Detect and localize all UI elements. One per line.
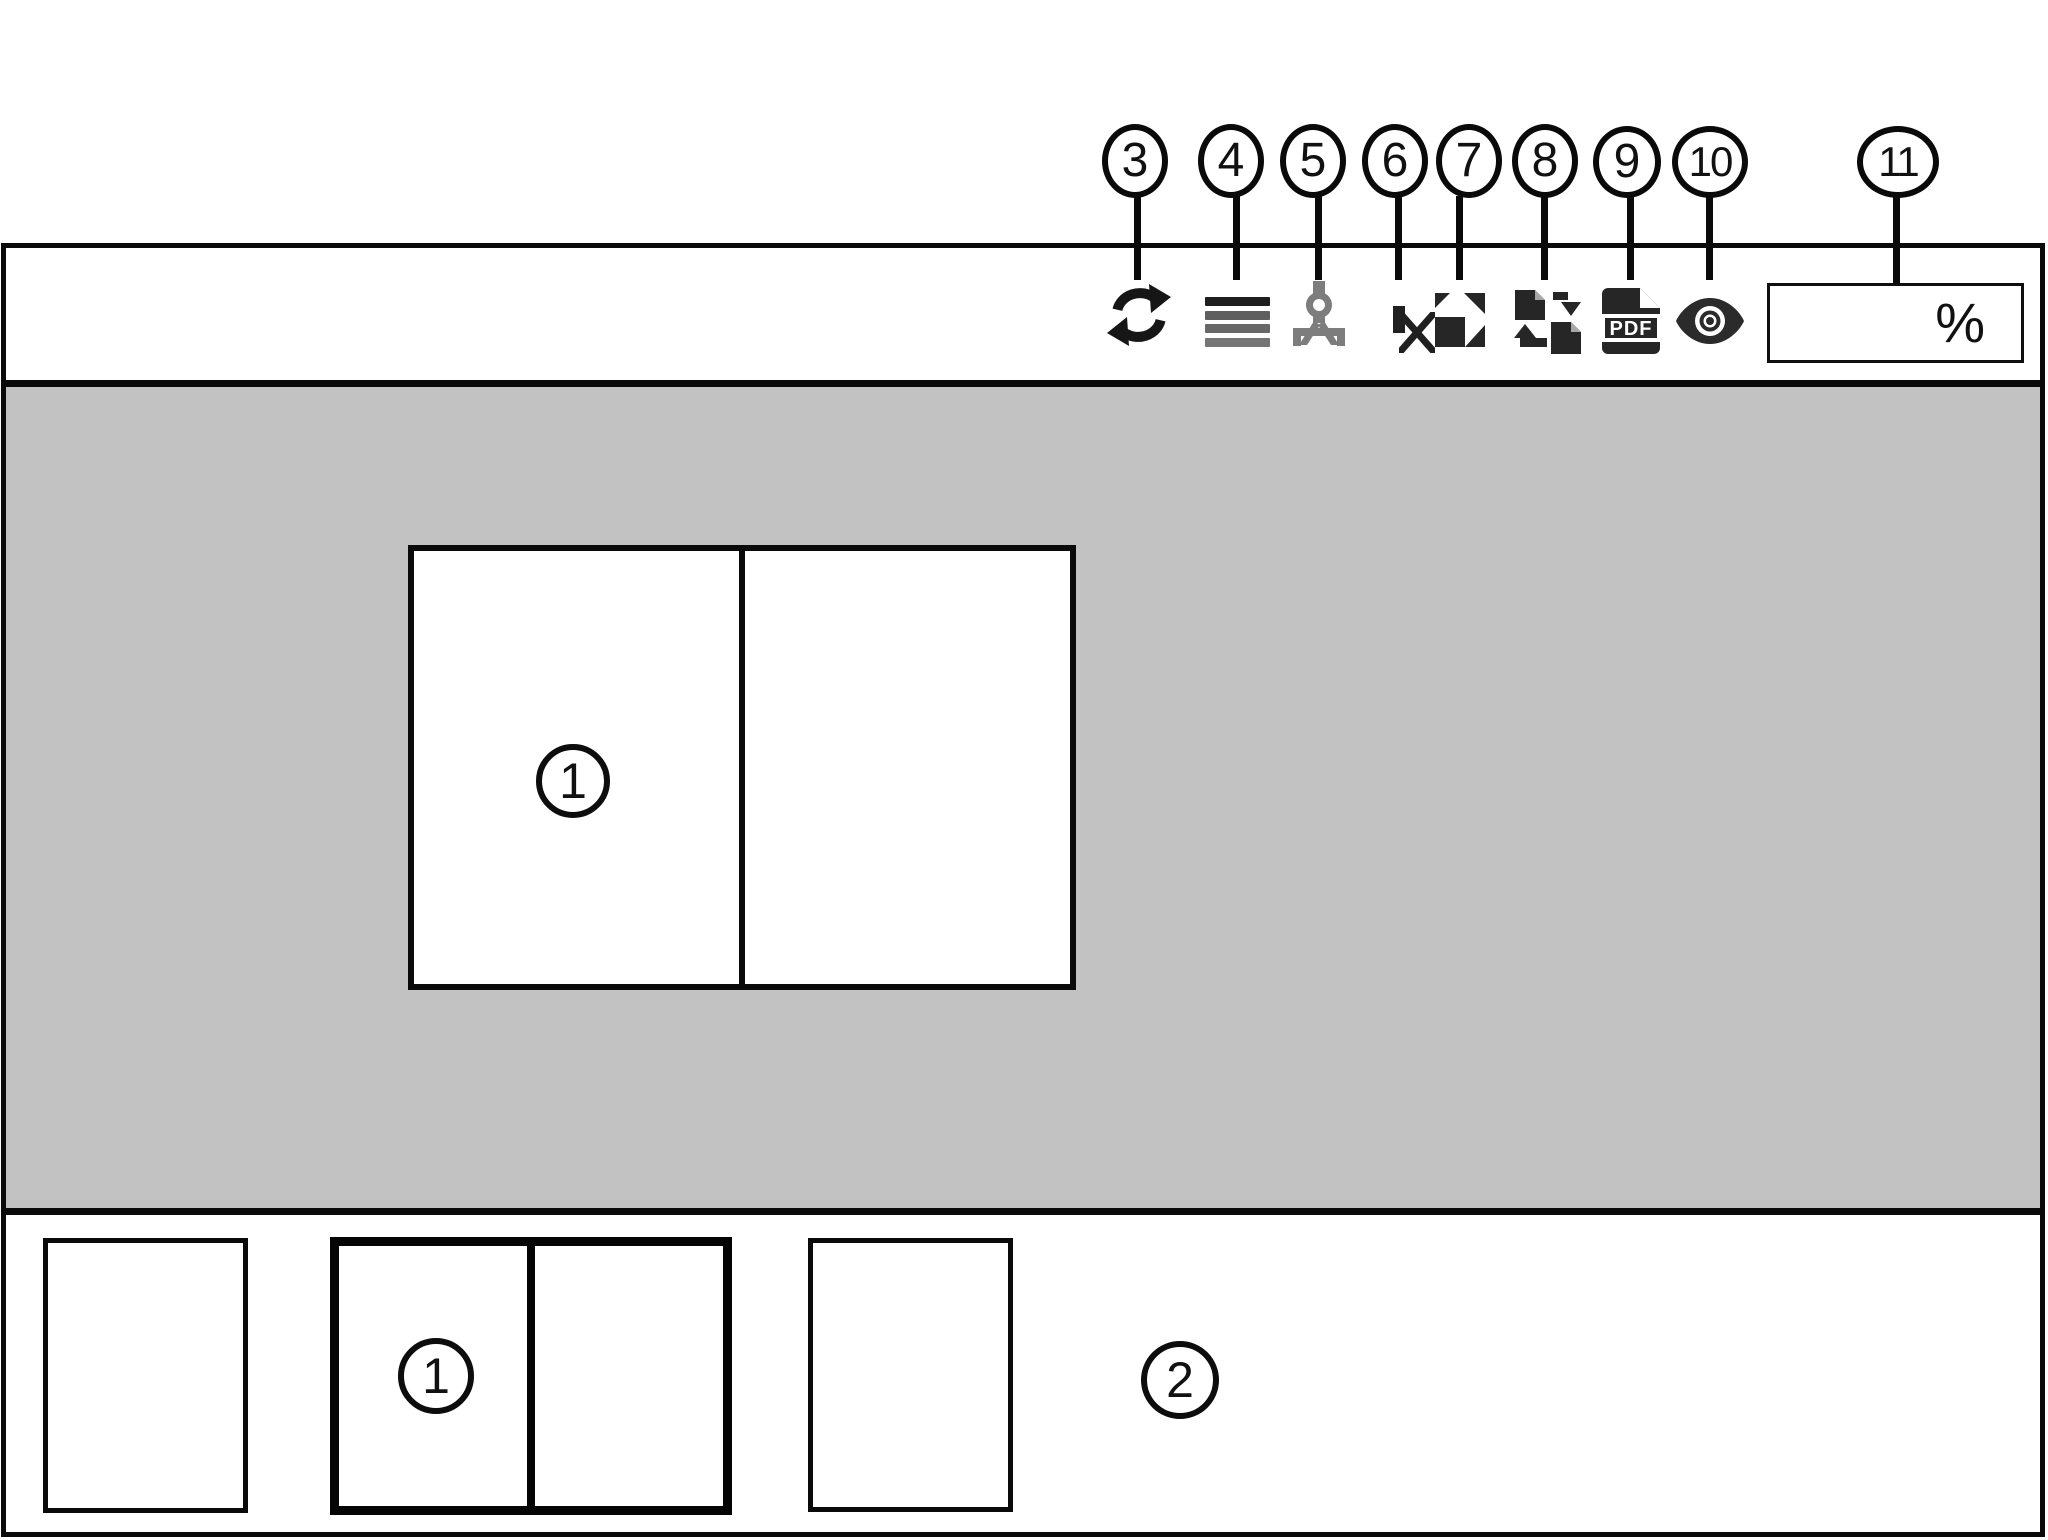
callout-2-number: 2 bbox=[1166, 1355, 1194, 1405]
callout-10-number: 10 bbox=[1689, 141, 1732, 183]
preview-spread: 1 bbox=[408, 545, 1076, 990]
pdf-icon: PDF bbox=[1600, 288, 1662, 354]
measure-tool-button[interactable] bbox=[1293, 281, 1345, 351]
callout-4: 4 bbox=[1198, 124, 1264, 198]
thumbnail-strip: 1 2 bbox=[6, 1208, 2040, 1532]
spread-gutter bbox=[739, 551, 745, 984]
delete-page-button[interactable] bbox=[1375, 293, 1423, 346]
thumbnail-gutter bbox=[527, 1246, 535, 1506]
toolbar: PDF % bbox=[6, 248, 2040, 387]
callout-3: 3 bbox=[1102, 124, 1168, 198]
line-weight-button[interactable] bbox=[1205, 297, 1270, 347]
callout-10: 10 bbox=[1672, 126, 1748, 198]
fit-to-page-button[interactable] bbox=[1435, 293, 1485, 347]
zoom-percent-field[interactable]: % bbox=[1767, 283, 2024, 363]
eye-icon bbox=[1675, 297, 1745, 345]
line-weight-icon bbox=[1205, 297, 1270, 347]
callout-8-number: 8 bbox=[1532, 137, 1559, 185]
callout-leader-line bbox=[1627, 196, 1634, 280]
manual-figure: 3 4 5 6 7 8 9 10 11 bbox=[0, 0, 2048, 1540]
callout-7-number: 7 bbox=[1456, 137, 1483, 185]
crossed-box-icon bbox=[1393, 306, 1405, 333]
callout-1-number: 1 bbox=[422, 1351, 450, 1401]
page-order-button[interactable] bbox=[1513, 286, 1583, 356]
callout-1-thumbnail: 1 bbox=[398, 1338, 474, 1414]
view-mode-button[interactable] bbox=[1675, 297, 1745, 345]
callout-6: 6 bbox=[1362, 124, 1428, 198]
callout-3-number: 3 bbox=[1122, 137, 1149, 185]
compass-icon bbox=[1293, 281, 1345, 351]
callout-leader-line bbox=[1233, 196, 1240, 280]
callout-9-number: 9 bbox=[1614, 138, 1641, 186]
callout-5-number: 5 bbox=[1300, 137, 1327, 185]
fit-to-page-icon bbox=[1435, 293, 1485, 347]
callout-leader-line bbox=[1134, 196, 1141, 280]
thumbnail-page-1[interactable] bbox=[43, 1238, 248, 1513]
callout-2-thumbnail-area: 2 bbox=[1141, 1341, 1219, 1419]
callout-6-number: 6 bbox=[1382, 137, 1409, 185]
callout-leader-line bbox=[1706, 196, 1713, 280]
callout-leader-line bbox=[1395, 196, 1402, 280]
callout-4-number: 4 bbox=[1218, 137, 1245, 185]
callout-11: 11 bbox=[1857, 126, 1939, 198]
preview-area: 1 bbox=[6, 387, 2040, 1208]
callout-9: 9 bbox=[1593, 126, 1661, 198]
thumbnail-page-2[interactable] bbox=[808, 1238, 1013, 1512]
swap-pages-icon bbox=[1513, 286, 1583, 356]
callout-leader-line bbox=[1893, 196, 1900, 284]
refresh-icon bbox=[1107, 282, 1171, 348]
callout-5: 5 bbox=[1280, 124, 1346, 198]
callout-leader-line bbox=[1456, 196, 1463, 280]
preview-window: PDF % bbox=[1, 243, 2045, 1537]
refresh-button[interactable] bbox=[1107, 282, 1171, 348]
callout-leader-line bbox=[1315, 196, 1322, 280]
callout-11-number: 11 bbox=[1878, 141, 1918, 183]
percent-unit-label: % bbox=[1935, 295, 1985, 351]
pdf-badge-text: PDF bbox=[1610, 318, 1653, 340]
thumbnail-spread-selected[interactable]: 1 bbox=[330, 1237, 732, 1515]
callout-7: 7 bbox=[1436, 124, 1502, 198]
callout-leader-line bbox=[1541, 196, 1548, 280]
callout-8: 8 bbox=[1512, 124, 1578, 198]
callout-1-preview: 1 bbox=[536, 744, 610, 818]
save-as-pdf-button[interactable]: PDF bbox=[1600, 288, 1662, 354]
callout-1-number: 1 bbox=[559, 756, 587, 806]
